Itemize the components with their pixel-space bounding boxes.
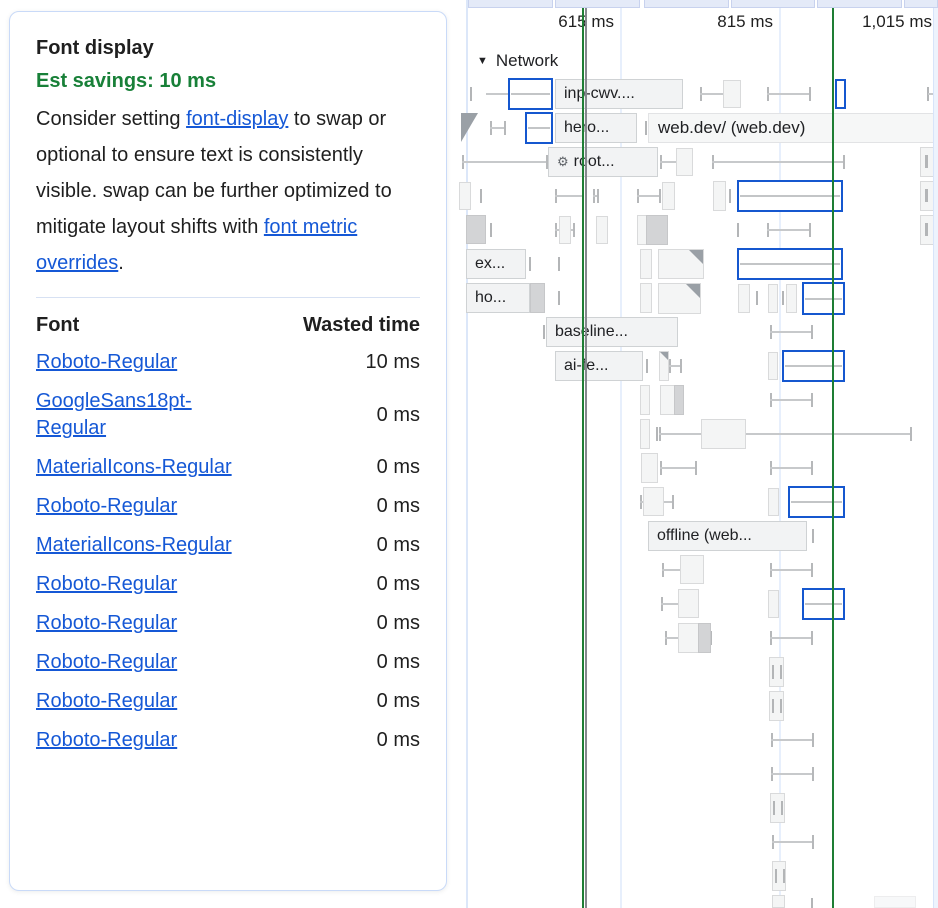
wasted-time-value: 0 ms — [377, 729, 420, 752]
request-box[interactable] — [559, 216, 571, 244]
marker-line-green — [832, 8, 834, 908]
font-table-header: Font Wasted time — [36, 306, 420, 343]
request-block[interactable] — [737, 180, 843, 212]
font-table-row: Roboto-Regular0 ms — [36, 682, 420, 721]
request-box[interactable] — [713, 181, 726, 211]
request-box[interactable] — [640, 385, 650, 415]
font-table-row: Roboto-Regular0 ms — [36, 487, 420, 526]
request-line — [486, 93, 510, 95]
whisker-part — [597, 189, 599, 203]
request-box[interactable] — [640, 249, 652, 279]
minimap-segment — [817, 0, 902, 8]
font-link[interactable]: MaterialIcons-Regular — [36, 532, 246, 559]
wasted-time-value: 0 ms — [377, 690, 420, 713]
request-box[interactable] — [640, 419, 650, 449]
request-box[interactable] — [678, 589, 699, 618]
request-box[interactable] — [768, 284, 778, 313]
whisker-part — [910, 427, 912, 441]
whisker-part — [771, 739, 814, 741]
right-edge-strip — [933, 8, 938, 908]
divider — [36, 297, 420, 298]
whisker-part — [462, 161, 548, 163]
whisker-part — [812, 835, 814, 849]
whisker-part — [767, 93, 811, 95]
font-link[interactable]: MaterialIcons-Regular — [36, 454, 246, 481]
description-text: Consider setting — [36, 108, 186, 130]
wasted-time-value: 10 ms — [366, 351, 420, 374]
minimap-segment — [644, 0, 729, 8]
request-block[interactable] — [508, 78, 553, 110]
request-label[interactable]: ai-fe... — [555, 351, 643, 381]
wasted-time-value: 0 ms — [377, 456, 420, 479]
marker-line-green — [582, 8, 584, 908]
panel-divider — [466, 0, 468, 908]
whisker-part — [811, 461, 813, 475]
wasted-time-value: 0 ms — [377, 495, 420, 518]
request-box[interactable] — [459, 182, 471, 210]
request-duration-line — [791, 501, 842, 503]
whisker-part — [770, 331, 813, 333]
request-box-folded[interactable] — [658, 283, 701, 314]
whisker-part — [767, 229, 811, 231]
request-whisker — [669, 359, 682, 373]
request-box-dark[interactable] — [466, 215, 486, 244]
font-link[interactable]: Roboto-Regular — [36, 571, 246, 598]
wasted-time-value: 0 ms — [377, 573, 420, 596]
request-box[interactable] — [768, 488, 779, 516]
request-whisker — [593, 189, 599, 203]
font-table-body: Roboto-Regular10 msGoogleSans18pt-Regula… — [36, 343, 420, 760]
font-table-row: MaterialIcons-Regular0 ms — [36, 448, 420, 487]
request-block[interactable] — [525, 112, 553, 144]
folded-corner-icon — [660, 352, 668, 360]
whisker-part — [770, 467, 813, 469]
gear-icon: ⚙ — [557, 154, 569, 170]
request-label[interactable]: ho... — [466, 283, 530, 313]
font-link[interactable]: Roboto-Regular — [36, 493, 246, 520]
request-tick — [781, 801, 783, 815]
request-label-text: root... — [574, 153, 615, 171]
request-tick — [558, 291, 560, 305]
request-whisker — [712, 155, 845, 169]
whisker-part — [809, 223, 811, 237]
request-fold-fragment — [461, 113, 478, 142]
request-box[interactable] — [676, 148, 693, 176]
audit-description: Consider setting font-display to swap or… — [36, 101, 420, 281]
request-label[interactable]: hero... — [555, 113, 637, 143]
audit-title: Font display — [36, 37, 420, 60]
ruler-label: 615 ms — [514, 12, 614, 34]
request-tick — [780, 665, 782, 679]
request-duration-line — [511, 93, 550, 95]
whisker-part — [811, 563, 813, 577]
request-tick — [782, 291, 784, 305]
request-label-text: ho... — [475, 289, 506, 307]
request-tick — [656, 427, 658, 441]
request-duration-line — [528, 127, 550, 129]
font-table-row: Roboto-Regular10 ms — [36, 343, 420, 382]
request-whisker — [462, 155, 548, 169]
request-tick — [737, 223, 739, 237]
request-whisker — [770, 325, 813, 339]
request-tick — [925, 223, 928, 236]
request-tick — [470, 87, 472, 101]
whisker-part — [812, 767, 814, 781]
font-link[interactable]: Roboto-Regular — [36, 688, 246, 715]
request-whisker — [659, 427, 912, 441]
request-whisker — [771, 767, 814, 781]
request-block[interactable] — [802, 282, 845, 315]
marker-line-gray — [585, 8, 587, 908]
whisker-part — [712, 161, 845, 163]
request-tick — [756, 291, 758, 305]
minimap-segment — [904, 0, 938, 8]
request-whisker — [770, 461, 813, 475]
request-label-text: offline (web... — [657, 527, 752, 545]
folded-corner-icon — [686, 284, 700, 298]
ruler-label: 815 ms — [673, 12, 773, 34]
request-box[interactable] — [641, 453, 658, 483]
request-whisker — [770, 631, 813, 645]
font-link[interactable]: GoogleSans18pt-Regular — [36, 388, 246, 442]
description-text: . — [118, 252, 124, 274]
request-label[interactable]: ⚙root... — [548, 147, 658, 177]
wasted-time-value: 0 ms — [377, 534, 420, 557]
minimap-segment — [468, 0, 553, 8]
whisker-part — [811, 393, 813, 407]
font-table-row: Roboto-Regular0 ms — [36, 604, 420, 643]
whisker-part — [672, 495, 674, 509]
font-table-row: Roboto-Regular0 ms — [36, 565, 420, 604]
minimap-segment — [731, 0, 815, 8]
request-label[interactable]: baseline... — [546, 317, 678, 347]
request-whisker — [660, 461, 697, 475]
whisker-part — [811, 325, 813, 339]
font-column-header: Font — [36, 314, 79, 337]
font-table-row: GoogleSans18pt-Regular0 ms — [36, 382, 420, 448]
request-box[interactable] — [662, 182, 675, 210]
request-tick — [729, 189, 731, 203]
wasted-time-value: 0 ms — [377, 651, 420, 674]
request-label[interactable]: ex... — [466, 249, 526, 279]
request-whisker — [767, 87, 811, 101]
whisker-part — [504, 121, 506, 135]
whisker-part — [809, 87, 811, 101]
request-box[interactable] — [786, 284, 797, 313]
request-whisker — [772, 835, 814, 849]
request-box-dark[interactable] — [698, 623, 711, 653]
request-box-dark[interactable] — [530, 283, 545, 313]
whisker-part — [637, 195, 661, 197]
font-link[interactable]: Roboto-Regular — [36, 349, 246, 376]
whisker-part — [770, 399, 813, 401]
request-tick — [480, 189, 482, 203]
request-box[interactable] — [701, 419, 746, 449]
request-duration-line — [740, 263, 840, 265]
whisker-part — [770, 637, 813, 639]
whisker-part — [843, 155, 845, 169]
whisker-part — [659, 433, 912, 435]
request-block[interactable] — [737, 248, 843, 280]
request-whisker — [555, 189, 584, 203]
request-box-folded[interactable] — [659, 351, 669, 381]
whisker-part — [695, 461, 697, 475]
request-box[interactable] — [768, 590, 779, 618]
savings-estimate: Est savings: 10 ms — [36, 70, 420, 93]
whisker-part — [555, 195, 584, 197]
request-label[interactable]: inp-cwv.... — [555, 79, 683, 109]
whisker-part — [772, 841, 814, 843]
request-label-text: baseline... — [555, 323, 628, 341]
request-block[interactable] — [788, 486, 845, 518]
request-tick — [773, 801, 775, 815]
font-table-row: Roboto-Regular0 ms — [36, 643, 420, 682]
request-tick — [812, 529, 814, 543]
request-tick — [558, 257, 560, 271]
request-tick — [529, 257, 531, 271]
wasted-time-column-header: Wasted time — [303, 314, 420, 337]
request-box[interactable] — [640, 283, 652, 313]
request-box[interactable] — [723, 80, 741, 108]
network-section-label: Network — [496, 51, 558, 71]
request-bar[interactable]: web.dev/ (web.dev) — [648, 113, 938, 143]
description-link[interactable]: font-display — [186, 108, 288, 130]
request-whisker — [771, 733, 814, 747]
font-link[interactable]: Roboto-Regular — [36, 610, 246, 637]
request-whisker — [767, 223, 811, 237]
request-tick — [645, 121, 647, 135]
font-display-audit-card: Font display Est savings: 10 ms Consider… — [9, 11, 447, 891]
request-box[interactable] — [768, 352, 778, 380]
request-tick — [925, 155, 928, 168]
request-box-folded[interactable] — [658, 249, 704, 279]
font-link[interactable]: Roboto-Regular — [36, 727, 246, 754]
request-tick — [775, 869, 777, 883]
request-whisker — [637, 189, 661, 203]
request-whisker — [490, 121, 506, 135]
request-tick — [543, 325, 545, 339]
request-tick — [772, 665, 774, 679]
request-whisker — [770, 563, 813, 577]
request-box-dark[interactable] — [646, 215, 668, 245]
request-tick — [772, 699, 774, 713]
request-label-text: ex... — [475, 255, 505, 273]
request-box[interactable] — [643, 487, 664, 516]
request-block[interactable] — [782, 350, 845, 382]
request-box[interactable] — [596, 216, 608, 244]
whisker-part — [770, 569, 813, 571]
request-tick — [925, 189, 928, 202]
minimap-segment — [555, 0, 640, 8]
font-table-row: Roboto-Regular0 ms — [36, 721, 420, 760]
request-label[interactable]: offline (web... — [648, 521, 807, 551]
request-tick — [780, 699, 782, 713]
ruler-label: 1,015 ms — [826, 12, 932, 34]
whisker-part — [573, 223, 575, 237]
whisker-part — [680, 359, 682, 373]
request-box-faint — [874, 896, 916, 908]
collapse-icon: ▼ — [477, 55, 488, 67]
ruler-gridline — [620, 8, 622, 908]
request-tick — [811, 898, 813, 908]
whisker-part — [811, 631, 813, 645]
folded-corner-icon — [689, 250, 703, 264]
request-whisker — [770, 393, 813, 407]
request-block[interactable] — [835, 79, 846, 109]
request-box[interactable] — [772, 895, 785, 908]
wasted-time-value: 0 ms — [377, 404, 420, 427]
request-duration-line — [805, 298, 842, 300]
whisker-part — [771, 773, 814, 775]
request-block[interactable] — [802, 588, 845, 620]
request-tick — [783, 869, 785, 883]
request-box[interactable] — [738, 284, 750, 313]
request-tick — [646, 359, 648, 373]
request-label-text: inp-cwv.... — [564, 85, 635, 103]
font-table-row: MaterialIcons-Regular0 ms — [36, 526, 420, 565]
request-duration-line — [740, 195, 840, 197]
request-tick — [490, 223, 492, 237]
request-box-dark[interactable] — [674, 385, 684, 415]
whisker-part — [812, 733, 814, 747]
whisker-part — [659, 189, 661, 203]
wasted-time-value: 0 ms — [377, 612, 420, 635]
request-box[interactable] — [680, 555, 704, 584]
request-duration-line — [805, 603, 842, 605]
request-label-text: web.dev/ (web.dev) — [658, 118, 805, 138]
whisker-part — [660, 467, 697, 469]
screenshot-root: 615 ms815 ms1,015 ms ▼ Network inp-cwv..… — [0, 0, 938, 908]
font-link[interactable]: Roboto-Regular — [36, 649, 246, 676]
network-section-toggle[interactable]: ▼ Network — [477, 50, 558, 72]
